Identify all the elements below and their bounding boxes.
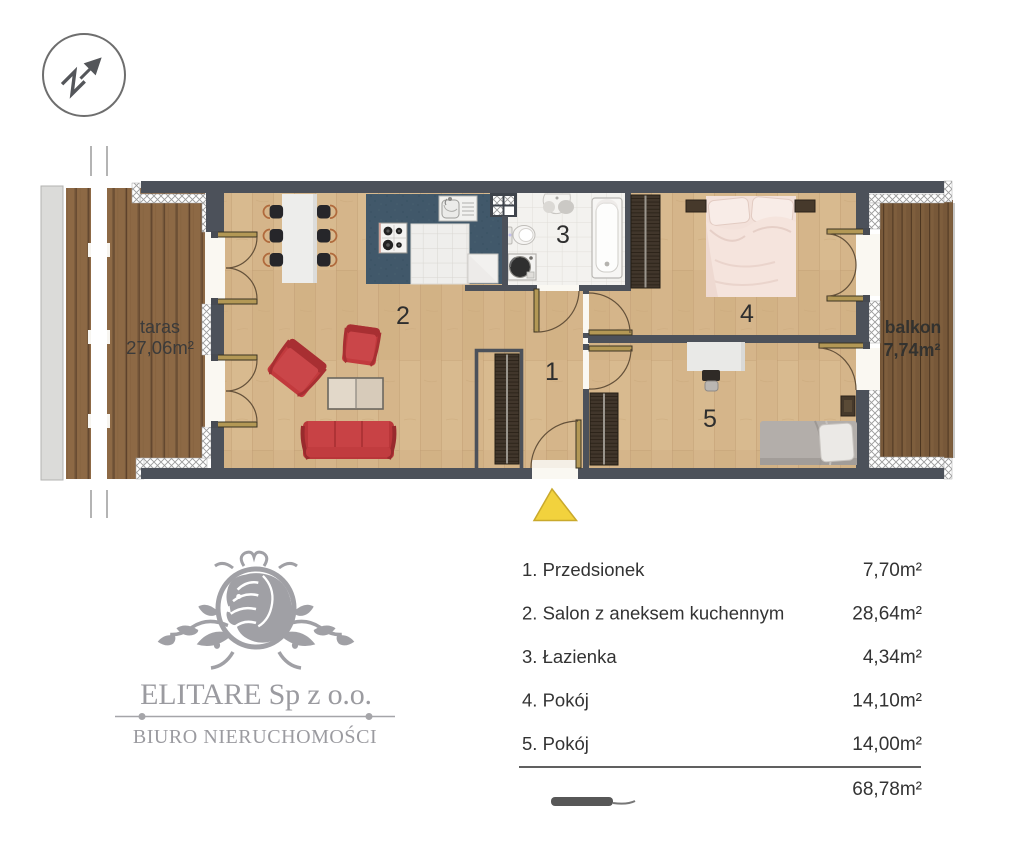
svg-text:4,34m²: 4,34m² <box>863 647 922 668</box>
svg-text:14,00m²: 14,00m² <box>852 734 922 755</box>
svg-text:BIURO NIERUCHOMOŚCI: BIURO NIERUCHOMOŚCI <box>133 724 377 748</box>
svg-text:balkon: balkon <box>885 317 941 337</box>
svg-text:4. Pokój: 4. Pokój <box>522 690 589 711</box>
svg-text:7,74m²: 7,74m² <box>883 340 940 360</box>
svg-text:14,10m²: 14,10m² <box>852 691 922 712</box>
svg-text:5: 5 <box>703 405 717 433</box>
svg-text:3: 3 <box>556 221 570 249</box>
svg-text:5. Pokój: 5. Pokój <box>522 733 589 754</box>
svg-text:taras: taras <box>140 317 180 337</box>
svg-text:7,70m²: 7,70m² <box>863 560 922 581</box>
svg-text:27,06m²: 27,06m² <box>126 337 194 358</box>
svg-text:2: 2 <box>396 302 410 330</box>
svg-text:ELITARE Sp z o.o.: ELITARE Sp z o.o. <box>140 678 372 711</box>
svg-text:3. Łazienka: 3. Łazienka <box>522 646 617 667</box>
svg-text:1. Przedsionek: 1. Przedsionek <box>522 559 645 580</box>
svg-text:1: 1 <box>545 358 559 386</box>
svg-text:68,78m²: 68,78m² <box>852 779 922 800</box>
svg-text:28,64m²: 28,64m² <box>852 604 922 625</box>
svg-text:4: 4 <box>740 300 754 328</box>
svg-text:2. Salon z aneksem kuchennym: 2. Salon z aneksem kuchennym <box>522 603 784 624</box>
